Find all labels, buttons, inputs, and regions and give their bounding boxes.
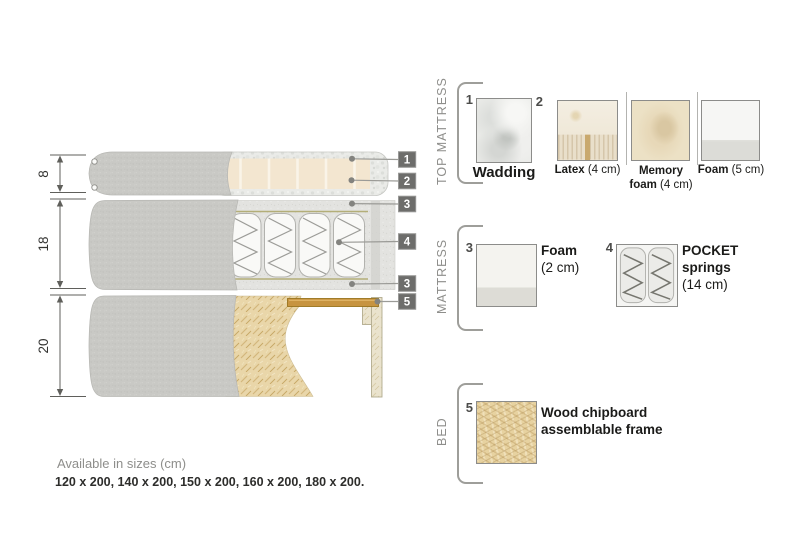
legend-item-number: 1 [459, 92, 473, 107]
marker-dot [375, 299, 381, 305]
foam-2cm-label: Foam(2 cm) [541, 242, 579, 276]
dimension-mattress [50, 199, 86, 289]
mattress-layer [89, 200, 395, 290]
legend-divider [697, 92, 698, 165]
pocket-springs-swatch [616, 244, 678, 307]
dimension-bed [50, 295, 86, 397]
bed-base-layer [89, 296, 382, 398]
cross-section-diagram: 8 18 20 [0, 0, 430, 533]
wood-slat [288, 299, 379, 307]
marker-number: 5 [404, 297, 411, 309]
vent-button [92, 185, 97, 190]
pocket-springs-label: POCKET springs (14 cm) [682, 242, 738, 293]
dimension-label: 8 [36, 170, 51, 178]
section-title-top-mattress: TOP MATTRESS [433, 82, 451, 180]
marker-number: 4 [404, 237, 411, 249]
marker-dot [349, 177, 355, 183]
marker-number: 2 [404, 176, 410, 188]
dimension-label: 20 [36, 338, 51, 353]
legend-item-number: 2 [529, 94, 543, 109]
latex-swatch [557, 100, 618, 161]
sizes-list: 120 x 200, 140 x 200, 150 x 200, 160 x 2… [55, 475, 364, 489]
marker-dot [336, 239, 342, 245]
memory-foam-swatch [631, 100, 690, 161]
section-title-mattress: MATTRESS [433, 225, 451, 327]
chipboard-frame-label: Wood chipboard assemblable frame [541, 404, 663, 438]
foam-5cm-swatch [701, 100, 760, 161]
bed-cover [89, 296, 239, 397]
side-plank [372, 298, 383, 398]
section-title-bed: BED [433, 383, 451, 480]
mattress-cover [89, 200, 238, 290]
foam-2cm-swatch [476, 244, 537, 307]
sizes-heading: Available in sizes (cm) [57, 456, 186, 471]
top-mattress-layer [89, 152, 388, 196]
chipboard-swatch [476, 401, 537, 464]
marker-dot [349, 201, 355, 207]
dimension-top-mattress [50, 155, 86, 193]
marker-number: 3 [404, 199, 410, 211]
pocket-springs-graphic [617, 245, 677, 306]
bed-construction-infographic: 8 18 20 [0, 0, 800, 533]
top-mattress-cover [89, 152, 232, 195]
legend-item-number: 5 [459, 400, 473, 415]
chipboard-fill [226, 296, 313, 397]
legend-item-number: 3 [459, 240, 473, 255]
marker-number: 1 [404, 155, 411, 167]
foam-5cm-label: Foam (5 cm) [692, 164, 770, 176]
marker-dot [349, 281, 355, 287]
legend-divider [626, 92, 627, 165]
vent-button [92, 159, 97, 164]
legend-item-number: 4 [599, 240, 613, 255]
dimension-label: 18 [36, 236, 51, 251]
marker-dot [349, 156, 355, 162]
wadding-swatch [476, 98, 532, 163]
wadding-label: Wadding [459, 164, 549, 181]
marker-number: 3 [404, 279, 410, 291]
